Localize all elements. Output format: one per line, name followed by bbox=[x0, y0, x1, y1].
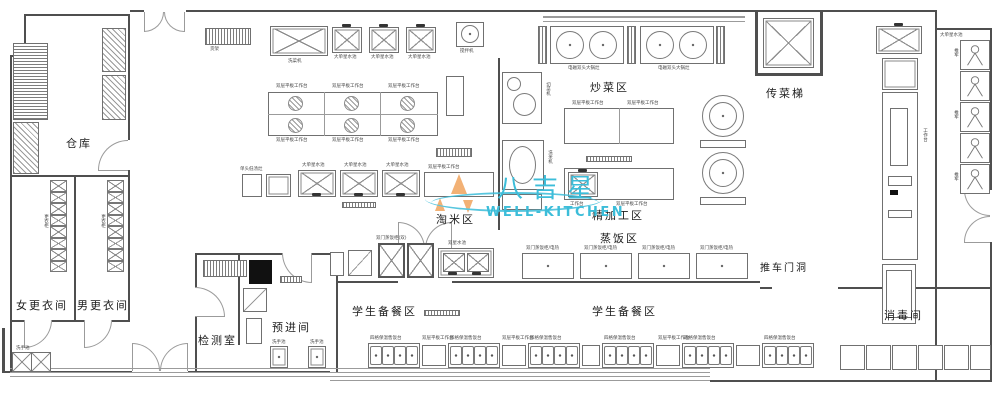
food-well bbox=[370, 346, 382, 365]
dish-rack bbox=[918, 345, 943, 370]
wall-testroom-left-lower bbox=[195, 317, 197, 373]
watermark-brand-cn: 八吉星 bbox=[497, 176, 602, 202]
locker-cell bbox=[50, 192, 67, 204]
locker-cell bbox=[50, 249, 67, 261]
locker-cell bbox=[107, 226, 124, 238]
small-cabinet bbox=[330, 252, 344, 276]
counter-inset bbox=[888, 176, 912, 186]
locker-cell bbox=[107, 192, 124, 204]
steam-cabinet-label: 双门蒸饭柜(双) bbox=[376, 237, 407, 242]
steam-cabinet-double bbox=[378, 243, 405, 278]
dish-rack bbox=[892, 345, 917, 370]
steam-cabinet-label: 双门蒸饭柜/电热 bbox=[700, 247, 733, 252]
wall-warehouse-top bbox=[24, 14, 130, 16]
locker-cell bbox=[50, 203, 67, 215]
room-label-testing: 检测室 bbox=[198, 335, 237, 346]
mixer-bowl bbox=[461, 25, 479, 43]
serving-counter bbox=[602, 343, 654, 368]
big-sink-label: 大单星水池 bbox=[386, 164, 409, 169]
wok-burner bbox=[679, 31, 707, 59]
floor-grate bbox=[586, 156, 632, 162]
cutter-wheel bbox=[507, 77, 521, 91]
faucet bbox=[472, 272, 481, 275]
table-label: 双层平板工作台 bbox=[332, 139, 364, 144]
hand-sink bbox=[31, 352, 51, 372]
locker-cell bbox=[107, 203, 124, 215]
door-arc bbox=[195, 287, 225, 317]
food-well bbox=[450, 346, 462, 365]
food-well bbox=[382, 346, 394, 365]
serving-counter-label: 四格保温售饭台 bbox=[684, 337, 716, 342]
hood-line bbox=[543, 21, 745, 22]
counter-label: 工作台 bbox=[922, 128, 927, 142]
wall-warehouse-right-upper bbox=[128, 14, 130, 140]
range-side-panel bbox=[716, 26, 725, 64]
door-arc bbox=[98, 140, 128, 170]
range-side-panel bbox=[627, 26, 636, 64]
food-well bbox=[566, 346, 578, 365]
work-table-small bbox=[348, 250, 372, 276]
food-well bbox=[800, 346, 812, 365]
serving-counter-label: 四格保温售饭台 bbox=[370, 337, 402, 342]
door-arc bbox=[964, 216, 990, 242]
storage-rack bbox=[102, 75, 126, 120]
big-sink bbox=[369, 27, 399, 53]
table-drain-hole bbox=[288, 118, 303, 133]
gap-table bbox=[656, 345, 680, 366]
big-sink bbox=[876, 26, 922, 54]
serving-pass-line bbox=[10, 368, 710, 369]
wall-bottom-right bbox=[710, 380, 992, 382]
door-arc bbox=[24, 320, 52, 348]
wall-left-outer bbox=[10, 55, 12, 373]
floor-mat bbox=[203, 260, 247, 277]
work-table-small bbox=[243, 288, 267, 312]
wok-range-label: 电磁双头大锅灶 bbox=[568, 67, 600, 72]
door-leaf bbox=[184, 12, 185, 32]
steam-cabinet-double bbox=[407, 243, 434, 278]
floor-mat bbox=[280, 276, 302, 283]
locker-cell bbox=[50, 215, 67, 227]
dish-rack bbox=[970, 345, 991, 370]
locker-cell bbox=[50, 261, 67, 273]
hand-sink-label: 洗手池 bbox=[272, 341, 286, 346]
mixer-label: 搅拌机 bbox=[460, 50, 474, 55]
door-arc bbox=[132, 343, 160, 371]
table-label: 双层平板工作台 bbox=[276, 139, 308, 144]
gap-table bbox=[736, 345, 760, 366]
big-sink-label: 大单星水池 bbox=[302, 164, 325, 169]
door-leaf bbox=[964, 242, 990, 243]
room-label-student-serving-left: 学生备餐区 bbox=[352, 306, 417, 317]
door-arc bbox=[144, 12, 164, 32]
gap-table bbox=[502, 345, 526, 366]
food-well bbox=[720, 346, 732, 365]
serving-counter bbox=[448, 343, 500, 368]
room-label-steam-rice: 蒸饭区 bbox=[600, 233, 639, 244]
room-label-men-changing: 男更衣间 bbox=[77, 300, 129, 311]
room-label-pre-entry: 预进间 bbox=[272, 322, 311, 333]
big-sink-label: 大单星水池 bbox=[344, 164, 367, 169]
food-well bbox=[406, 346, 418, 365]
serving-counter-label: 四格保温售饭台 bbox=[604, 337, 636, 342]
double-sink-label: 双星水池 bbox=[448, 242, 466, 247]
food-well bbox=[474, 346, 486, 365]
serving-counter bbox=[528, 343, 580, 368]
pot-shelf bbox=[700, 197, 746, 205]
wall-changing-divider bbox=[74, 177, 76, 322]
serving-pass-line bbox=[330, 380, 710, 381]
counter-mark bbox=[890, 190, 898, 195]
storage-rack bbox=[13, 43, 48, 120]
floor-grate bbox=[342, 202, 376, 208]
wall-elevator-left bbox=[755, 10, 758, 75]
locker-cell bbox=[107, 261, 124, 273]
table-drain-hole bbox=[344, 96, 359, 111]
shelf-label: 货架 bbox=[210, 48, 219, 53]
big-sink-label: 大单星水池 bbox=[940, 34, 963, 39]
food-well bbox=[788, 346, 800, 365]
faucet bbox=[379, 24, 388, 27]
pot-shelf bbox=[700, 140, 746, 148]
table-drain-hole bbox=[400, 96, 415, 111]
steam-cabinet bbox=[522, 253, 574, 279]
wall-east-upper bbox=[990, 28, 992, 190]
counter-inset bbox=[890, 108, 908, 166]
counter-inset bbox=[888, 210, 912, 218]
faucet bbox=[312, 193, 321, 196]
wok-burner bbox=[589, 31, 617, 59]
bench bbox=[446, 76, 464, 116]
table-drain-hole bbox=[400, 118, 415, 133]
table-drain-hole bbox=[288, 96, 303, 111]
trolley bbox=[960, 133, 990, 163]
table-label: 双层平板工作台 bbox=[572, 102, 604, 107]
serving-counter-label: 四格保温售饭台 bbox=[530, 337, 562, 342]
serving-counter bbox=[368, 343, 420, 368]
kitchen-floor-plan: 仓库 更衣柜 更衣柜 女更衣间 男更衣间 检测室 预进间 洗手池 洗手池 洗手池… bbox=[0, 0, 1000, 402]
room-label-women-changing: 女更衣间 bbox=[16, 300, 68, 311]
steam-cabinet-label: 双门蒸饭柜/电热 bbox=[526, 247, 559, 252]
wok-range-label: 电磁双头大锅灶 bbox=[658, 67, 690, 72]
cabinet bbox=[882, 58, 918, 90]
steam-cabinet-label: 双门蒸饭柜/电热 bbox=[584, 247, 617, 252]
cutter-wheel bbox=[513, 93, 536, 116]
shelf-rack bbox=[205, 28, 251, 45]
rice-washer-label: 洗米机 bbox=[547, 150, 552, 164]
gap-table-label: 双层平板工作台 bbox=[502, 337, 534, 342]
big-sink-label: 大单星水池 bbox=[371, 56, 394, 61]
sink-bowl bbox=[443, 253, 465, 272]
gap-table-label: 双层平板工作台 bbox=[422, 337, 454, 342]
locker-label: 更衣柜 bbox=[43, 214, 48, 228]
wall-cartdoor-left bbox=[760, 287, 772, 289]
door-arc bbox=[164, 12, 184, 32]
hand-sink bbox=[270, 346, 288, 368]
room-label-food-elevator: 传菜梯 bbox=[766, 88, 805, 99]
food-well bbox=[684, 346, 696, 365]
serving-pass-line bbox=[10, 376, 710, 377]
pass-shelf bbox=[424, 310, 460, 316]
big-sink-label: 大单星水池 bbox=[408, 56, 431, 61]
door-leaf bbox=[98, 170, 128, 171]
door-arc bbox=[84, 320, 112, 348]
room-label-student-serving-right: 学生备餐区 bbox=[592, 306, 657, 317]
range-side-panel bbox=[538, 26, 547, 64]
storage-rack bbox=[13, 122, 39, 174]
storage-rack bbox=[102, 28, 126, 72]
locker-cell bbox=[107, 249, 124, 261]
food-well bbox=[462, 346, 474, 365]
bench-rack bbox=[436, 148, 472, 157]
wall-changing-bottom-2 bbox=[52, 320, 84, 322]
wall-changing-bottom-3 bbox=[112, 320, 130, 322]
wall-changing-bottom-1 bbox=[10, 320, 24, 322]
wall-bottomleft-outer bbox=[2, 328, 5, 373]
food-well bbox=[530, 346, 542, 365]
dish-rack bbox=[866, 345, 891, 370]
steam-cabinet bbox=[696, 253, 748, 279]
table-divider bbox=[619, 108, 620, 144]
room-label-cart-doorway: 推车门洞 bbox=[760, 264, 808, 274]
table-label: 双层平板工作台 bbox=[388, 85, 420, 90]
wall-topright-step bbox=[935, 10, 937, 30]
wall-testroom-left-upper bbox=[195, 253, 197, 287]
wall-top-left bbox=[130, 10, 144, 12]
food-well bbox=[764, 346, 776, 365]
serving-counter-label: 四格保温售饭台 bbox=[450, 337, 482, 342]
table-drain-hole bbox=[344, 118, 359, 133]
room-label-disinfection: 消毒间 bbox=[884, 310, 923, 321]
wall-disinfect-north bbox=[850, 287, 990, 289]
room-label-stir-fry: 炒菜区 bbox=[590, 82, 629, 93]
locker-column-women bbox=[50, 180, 67, 272]
food-well bbox=[616, 346, 628, 365]
wok-burner bbox=[646, 31, 674, 59]
serving-counter bbox=[682, 343, 734, 368]
wall-kitchen-south-2 bbox=[452, 281, 760, 283]
wall-kitchen-south-1 bbox=[338, 281, 398, 283]
table-label: 双层平板工作台 bbox=[627, 102, 659, 107]
trolley bbox=[960, 40, 990, 70]
big-sink bbox=[332, 27, 362, 53]
trolley-label: 推车 bbox=[953, 172, 958, 181]
dumbwaiter-shaft bbox=[763, 18, 814, 68]
serving-counter bbox=[762, 343, 814, 368]
dish-rack bbox=[840, 345, 865, 370]
food-well bbox=[604, 346, 616, 365]
soup-pot-inner bbox=[709, 159, 737, 187]
veg-cutter-label: 切菜机 bbox=[545, 82, 550, 96]
soup-pot-inner bbox=[709, 102, 737, 130]
shaft-block bbox=[249, 260, 272, 284]
big-sink-label: 大单星水池 bbox=[334, 56, 357, 61]
trolley bbox=[960, 71, 990, 101]
table-label: 双层平板工作台 bbox=[332, 85, 364, 90]
wall-warehouse-changing-divider bbox=[10, 175, 130, 177]
hood-line bbox=[543, 16, 745, 18]
trolley-label: 推车 bbox=[953, 110, 958, 119]
locker-cell bbox=[107, 215, 124, 227]
serving-pass-line bbox=[10, 372, 710, 373]
faucet bbox=[894, 23, 903, 26]
steam-cabinet bbox=[638, 253, 690, 279]
wall-kitchen-right bbox=[935, 28, 937, 380]
trolley-label: 推车 bbox=[953, 48, 958, 57]
soup-stove-label: 单头低汤灶 bbox=[240, 168, 263, 173]
wall-right-corridor-top bbox=[935, 28, 992, 30]
room-label-warehouse: 仓库 bbox=[66, 138, 92, 149]
food-well bbox=[554, 346, 566, 365]
food-well bbox=[628, 346, 640, 365]
food-well bbox=[776, 346, 788, 365]
work-cabinet bbox=[266, 174, 291, 197]
faucet bbox=[416, 24, 425, 27]
dish-rack bbox=[944, 345, 969, 370]
food-well bbox=[640, 346, 652, 365]
faucet bbox=[342, 24, 351, 27]
locker-cell bbox=[107, 238, 124, 250]
locker-column-men bbox=[107, 180, 124, 272]
steam-cabinet bbox=[580, 253, 632, 279]
veg-washer-label: 洗菜机 bbox=[288, 60, 302, 65]
food-well bbox=[542, 346, 554, 365]
serving-counter-label: 四格保温售饭台 bbox=[764, 337, 796, 342]
watermark-brand-en: WELL-KITCHEN bbox=[486, 206, 625, 219]
door-arc bbox=[160, 343, 188, 371]
locker-cell bbox=[50, 238, 67, 250]
locker-label: 更衣柜 bbox=[100, 214, 105, 228]
gap-table bbox=[422, 345, 446, 366]
table-label: 双层平板工作台 bbox=[276, 85, 308, 90]
gap-table bbox=[582, 345, 600, 366]
wok-burner bbox=[556, 31, 584, 59]
faucet bbox=[396, 193, 405, 196]
locker-cell bbox=[107, 180, 124, 192]
soup-stove bbox=[242, 174, 262, 197]
trolley bbox=[960, 164, 990, 194]
sink-bowl bbox=[467, 253, 489, 272]
faucet bbox=[354, 193, 363, 196]
locker-cell bbox=[50, 180, 67, 192]
big-sink bbox=[406, 27, 436, 53]
food-well bbox=[394, 346, 406, 365]
wall-elevator-right bbox=[820, 10, 823, 75]
hand-sink bbox=[308, 346, 326, 368]
hand-sink-label: 洗手池 bbox=[310, 341, 324, 346]
hand-sink-label: 洗手池 bbox=[16, 347, 30, 352]
hand-sink bbox=[12, 352, 32, 372]
veg-washer bbox=[270, 26, 328, 56]
steam-cabinet-label: 双门蒸饭柜/电热 bbox=[642, 247, 675, 252]
food-well bbox=[486, 346, 498, 365]
food-well bbox=[696, 346, 708, 365]
locker-cell bbox=[50, 226, 67, 238]
table-label: 双层平板工作台 bbox=[388, 139, 420, 144]
table-divider bbox=[268, 114, 438, 115]
food-well bbox=[708, 346, 720, 365]
faucet bbox=[448, 272, 457, 275]
wall-elevator-bottom bbox=[755, 73, 823, 76]
trolley bbox=[960, 102, 990, 132]
work-column bbox=[246, 318, 262, 344]
